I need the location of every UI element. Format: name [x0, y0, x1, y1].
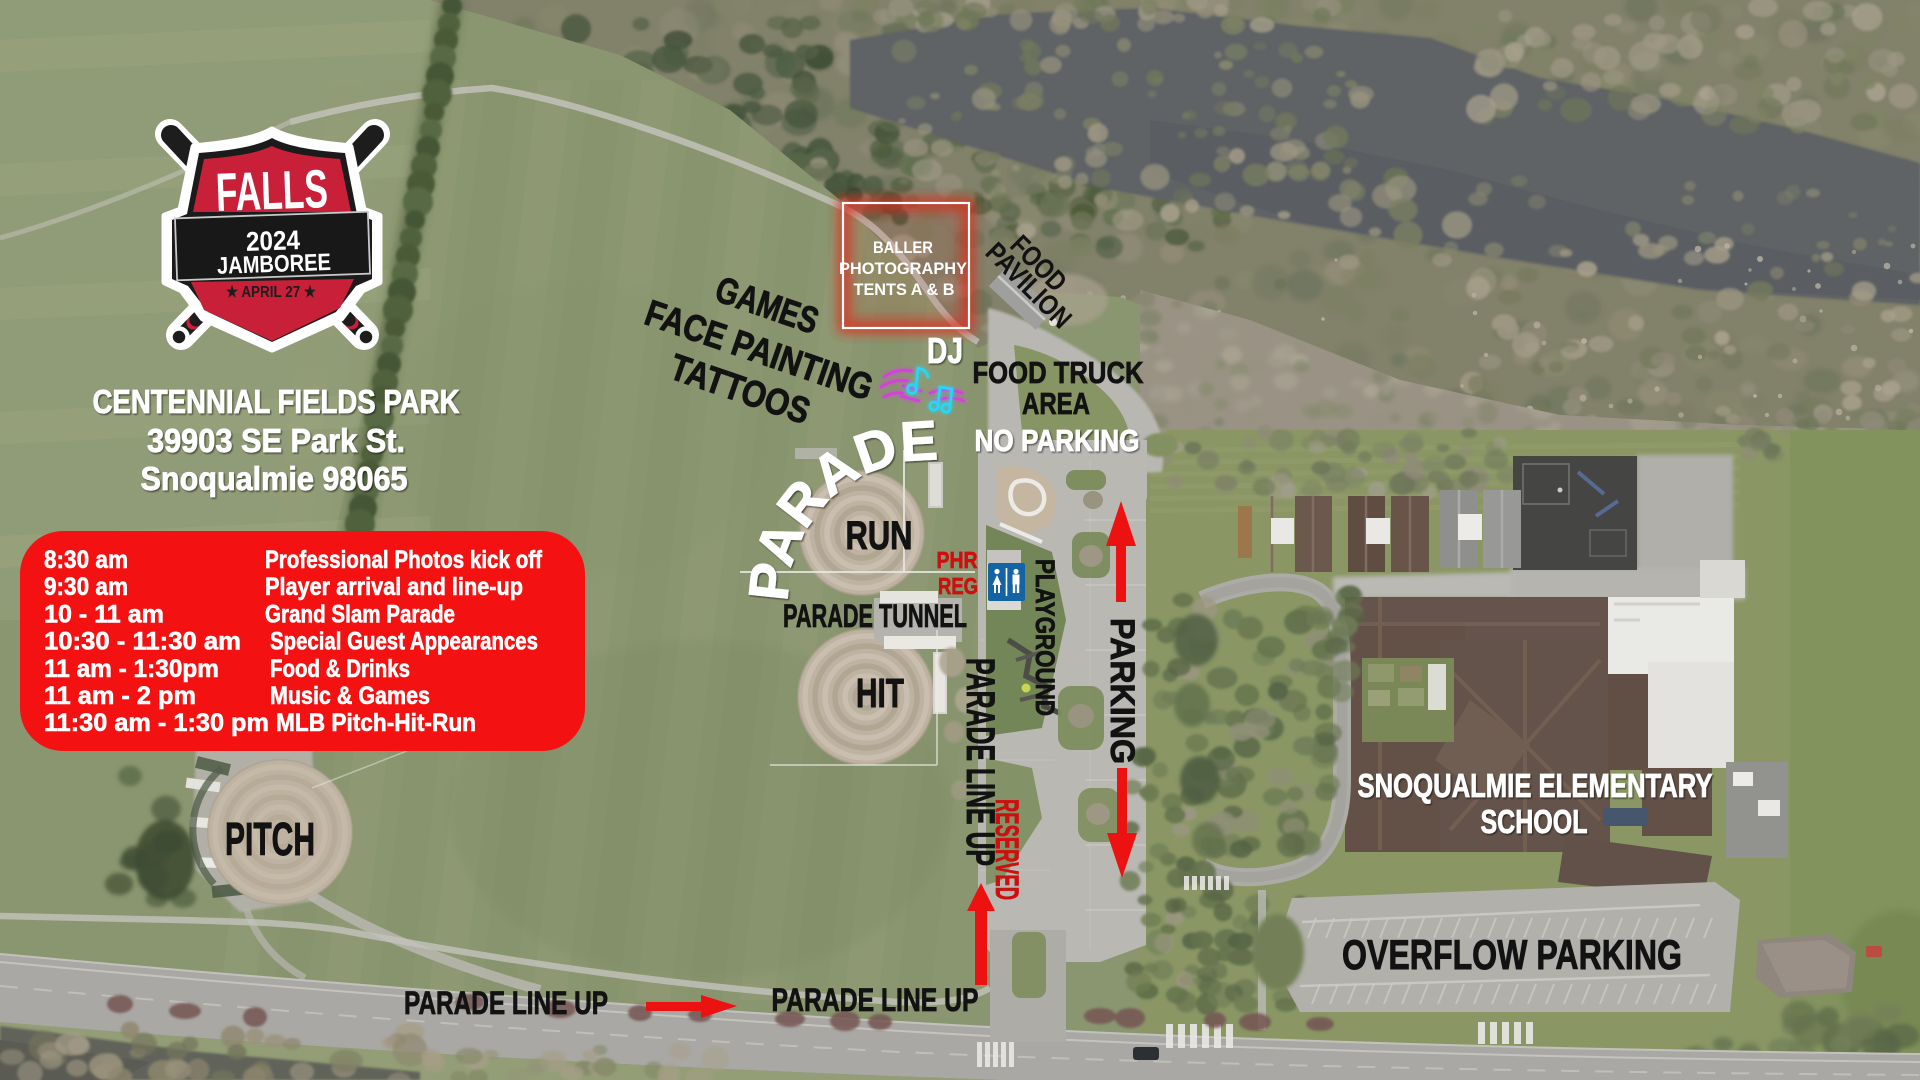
svg-text:PHR: PHR	[937, 547, 978, 573]
svg-text:PHOTOGRAPHY: PHOTOGRAPHY	[839, 259, 968, 278]
svg-text:RUN: RUN	[846, 514, 913, 558]
svg-text:OVERFLOW PARKING: OVERFLOW PARKING	[1342, 931, 1682, 978]
svg-text:Grand Slam Parade: Grand Slam Parade	[265, 600, 455, 628]
svg-text:10 - 11 am: 10 - 11 am	[44, 600, 164, 628]
svg-text:9:30 am: 9:30 am	[44, 573, 128, 601]
svg-text:HIT: HIT	[856, 670, 904, 716]
svg-text:11 am - 2 pm: 11 am - 2 pm	[44, 682, 196, 710]
svg-text:Food & Drinks: Food & Drinks	[270, 655, 410, 683]
svg-text:CENTENNIAL FIELDS PARK: CENTENNIAL FIELDS PARK	[93, 383, 460, 420]
svg-text:PARADE LINE UP: PARADE LINE UP	[404, 985, 608, 1021]
svg-text:TENTS A & B: TENTS A & B	[854, 280, 955, 299]
svg-text:REG: REG	[938, 573, 978, 599]
svg-text:RESERVED: RESERVED	[989, 799, 1025, 900]
svg-text:10:30 - 11:30 am: 10:30 - 11:30 am	[44, 628, 241, 656]
svg-text:11:30 am - 1:30 pm: 11:30 am - 1:30 pm	[44, 709, 269, 737]
svg-text:MLB Pitch-Hit-Run: MLB Pitch-Hit-Run	[276, 709, 476, 737]
svg-text:PARADE TUNNEL: PARADE TUNNEL	[783, 598, 967, 634]
svg-text:Professional Photos kick off: Professional Photos kick off	[265, 546, 543, 574]
svg-text:PLAYGROUND: PLAYGROUND	[1030, 559, 1060, 716]
svg-text:DJ: DJ	[927, 330, 963, 371]
svg-text:SCHOOL: SCHOOL	[1481, 803, 1588, 840]
svg-text:NO PARKING: NO PARKING	[975, 423, 1140, 458]
svg-text:PITCH: PITCH	[225, 813, 315, 865]
svg-text:Player arrival and line-up: Player arrival and line-up	[265, 573, 523, 601]
svg-text:FALLS: FALLS	[215, 159, 329, 223]
svg-text:★ APRIL 27 ★: ★ APRIL 27 ★	[226, 284, 317, 301]
svg-text:Music & Games: Music & Games	[270, 682, 430, 710]
svg-text:11 am - 1:30pm: 11 am - 1:30pm	[44, 655, 219, 683]
svg-text:JAMBOREE: JAMBOREE	[217, 249, 332, 280]
svg-text:AREA: AREA	[1022, 386, 1090, 421]
svg-text:8:30 am: 8:30 am	[44, 546, 128, 574]
svg-text:39903 SE Park St.: 39903 SE Park St.	[147, 422, 405, 459]
svg-text:PARADE LINE UP: PARADE LINE UP	[772, 982, 979, 1018]
svg-text:PARKING: PARKING	[1103, 618, 1141, 764]
svg-text:SNOQUALMIE ELEMENTARY: SNOQUALMIE ELEMENTARY	[1358, 767, 1713, 804]
svg-text:Special Guest Appearances: Special Guest Appearances	[270, 628, 538, 656]
svg-text:BALLER: BALLER	[873, 238, 933, 257]
svg-text:Snoqualmie 98065: Snoqualmie 98065	[141, 460, 408, 497]
svg-text:FOOD TRUCK: FOOD TRUCK	[973, 355, 1144, 390]
